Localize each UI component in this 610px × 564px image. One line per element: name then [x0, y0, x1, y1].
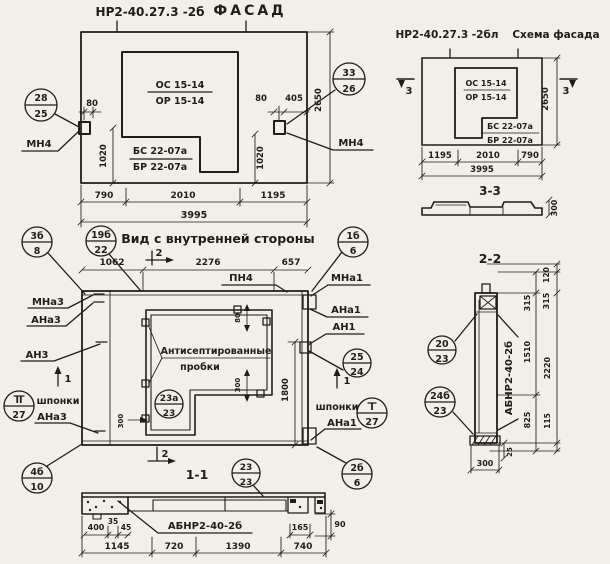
dim-405: 405	[285, 94, 303, 104]
svg-text:20: 20	[435, 339, 449, 350]
svg-text:I: I	[370, 402, 374, 413]
label-ana1-bottom: АНа1	[327, 418, 357, 429]
facade-drawing: НР2-40.27.3 -2б ФАСАД ОС 15-14 ОР 15-14 …	[22, 3, 373, 227]
anchor-label-mn4-left: МН4	[26, 139, 51, 150]
dim-1020-left-line	[110, 125, 116, 186]
dim-2650: 2650	[541, 87, 551, 111]
window-mark-top: ОС 15-14	[156, 80, 205, 91]
blueprint-page: НР2-40.27.3 -2б ФАСАД ОС 15-14 ОР 15-14 …	[0, 0, 610, 564]
dim-25: 25	[506, 447, 514, 457]
dim-115: 115	[543, 413, 552, 429]
dim-400: 400	[88, 523, 105, 532]
dim-right-lines	[268, 106, 310, 120]
svg-text:24б: 24б	[430, 391, 450, 402]
inner-dim-line	[533, 269, 539, 454]
dim-2010: 2010	[170, 191, 195, 201]
note-line1: Антисептированные	[161, 346, 272, 357]
svg-text:28: 28	[34, 93, 48, 104]
svg-text:1: 1	[65, 374, 72, 385]
svg-text:23: 23	[435, 354, 448, 365]
title-ticks	[117, 21, 246, 31]
label-mna3: МНа3	[32, 297, 64, 308]
anchor-mn4-right	[274, 121, 285, 134]
schema-code: НР2-40.27.3 -2бл	[396, 29, 499, 41]
svg-text:26: 26	[342, 84, 356, 95]
schema-title: Схема фасада	[512, 29, 599, 41]
label-shponki-right: шпонки	[316, 402, 359, 413]
svg-text:3: 3	[563, 86, 570, 97]
dim-3995: 3995	[470, 165, 494, 175]
dim-plug-left: 300	[117, 414, 125, 429]
section-marker-2-top: 2	[146, 248, 174, 265]
svg-text:24: 24	[350, 367, 364, 378]
callout-24b-23: 24б 23	[425, 387, 473, 434]
svg-text:1б: 1б	[346, 231, 360, 242]
connector-bottom-right	[303, 428, 316, 444]
anchor-label-mn4-right: МН4	[338, 138, 363, 149]
svg-text:23: 23	[240, 478, 253, 488]
dim-825: 825	[523, 411, 532, 428]
panel-mark-bottom: БР 22-07а	[487, 136, 533, 145]
label-mna1: МНа1	[331, 273, 363, 284]
section-22-panel	[475, 293, 497, 443]
connector-top-right	[303, 295, 316, 309]
dim-2276: 2276	[195, 258, 220, 268]
dim-790: 790	[95, 191, 114, 201]
dim-740: 740	[294, 542, 313, 552]
dim-45: 45	[121, 523, 131, 532]
connector-cross	[480, 296, 496, 309]
callout-23a-23: 23а 23	[155, 390, 183, 419]
callout-shponki-left: II 27	[4, 391, 34, 421]
ana3-bottom-leader	[35, 423, 105, 433]
svg-text:23: 23	[163, 409, 176, 419]
callout-23-23: 23 23	[232, 459, 263, 496]
top-dim-line	[79, 267, 311, 291]
svg-text:8: 8	[34, 246, 41, 257]
dim-790: 790	[521, 151, 539, 161]
dim-300: 300	[477, 459, 494, 468]
dim-2010: 2010	[476, 151, 500, 161]
callout-4b-10: 4б 10	[22, 444, 82, 493]
dim-90-line	[315, 510, 335, 540]
facade-code: НР2-40.27.3 -2б	[96, 5, 205, 19]
panel-mark-top: БС 22-07а	[487, 122, 533, 131]
label-ana3-bottom: АНа3	[37, 412, 67, 423]
section-33-profile	[422, 202, 542, 215]
dim-2220: 2220	[543, 356, 552, 379]
dim-80-right: 80	[255, 94, 267, 104]
dim-1195: 1195	[428, 151, 452, 161]
svg-text:27: 27	[12, 410, 25, 421]
svg-text:10: 10	[30, 482, 44, 493]
svg-text:25: 25	[34, 109, 47, 120]
svg-text:3: 3	[406, 86, 413, 97]
section-11-title: 1-1	[186, 467, 209, 482]
dim-1390: 1390	[225, 542, 250, 552]
callout-20-23: 20 23	[428, 314, 477, 365]
window-mark-bottom: ОР 15-14	[156, 96, 205, 107]
label-ana1: АНа1	[331, 305, 361, 316]
dim-1062: 1062	[99, 258, 124, 268]
svg-text:25: 25	[350, 352, 363, 363]
dim-165: 165	[292, 523, 309, 532]
dim-plug-top: 80	[234, 313, 242, 323]
svg-text:3б: 3б	[30, 231, 44, 242]
svg-text:II: II	[15, 395, 22, 406]
svg-text:2: 2	[162, 449, 169, 460]
section-marker-1-right: 1	[334, 368, 351, 388]
dim-315b: 315	[542, 292, 551, 309]
note-line2: пробки	[180, 362, 220, 373]
label-an1: АН1	[332, 322, 355, 333]
section-11-drawing: 1-1 23 23 АБНР2-40-2б 400 35 45 165 90 1…	[79, 459, 346, 557]
dim-720: 720	[165, 542, 184, 552]
section-marker-2-bottom: 2	[148, 447, 176, 464]
svg-text:19б: 19б	[91, 230, 111, 241]
section-marker-3-right: 3	[560, 79, 577, 97]
dim-1020-left: 1020	[99, 144, 109, 168]
callout-shponki-right: I 27	[357, 398, 387, 428]
dim-657: 657	[282, 258, 301, 268]
svg-text:2б: 2б	[350, 463, 364, 474]
svg-text:2: 2	[156, 248, 163, 259]
panel-mark-bottom: БР 22-07а	[133, 162, 187, 173]
section-marker-1-left: 1	[55, 366, 72, 386]
dim-315a: 315	[523, 294, 532, 311]
mna1-leader	[311, 285, 370, 296]
outer-dim-line	[554, 261, 560, 454]
callout-25-24: 25 24	[309, 349, 371, 378]
top-tenon	[482, 284, 490, 293]
section-22-drawing: 2-2 АБНР2-40-2б 20 23 24б 23 315 1510 82…	[425, 251, 560, 473]
an1-leader	[308, 334, 364, 345]
panel-mark-top: БС 22-07а	[133, 146, 187, 157]
label-abnr-rotated: АБНР2-40-2б	[503, 341, 515, 415]
label-abnr: АБНР2-40-2б	[168, 520, 242, 532]
svg-text:23: 23	[433, 406, 446, 417]
window-mark-top: ОС 15-14	[465, 79, 506, 88]
section-marker-3-left: 3	[397, 79, 414, 97]
panel-inner-lines	[475, 300, 497, 433]
dim-120: 120	[542, 267, 551, 283]
blueprint-canvas: НР2-40.27.3 -2б ФАСАД ОС 15-14 ОР 15-14 …	[0, 0, 610, 564]
dim-1510: 1510	[523, 340, 532, 363]
svg-text:33: 33	[342, 68, 355, 79]
dim-plug-bottom: 300	[234, 378, 242, 393]
ana1-bottom-leader	[311, 429, 361, 440]
svg-text:4б: 4б	[30, 467, 44, 478]
callout-2b-6: 2б 6	[317, 447, 372, 489]
inner-view-drawing: 3б 8 19б 22 Вид с внутренней стороны 106…	[4, 226, 387, 493]
inner-band	[128, 497, 288, 511]
svg-text:23а: 23а	[160, 394, 179, 404]
dim-1020-right: 1020	[256, 146, 266, 170]
label-shponki-left: шпонки	[37, 396, 80, 407]
dim-3995: 3995	[181, 210, 207, 221]
dim-80-left: 80	[86, 99, 98, 109]
dim-2650: 2650	[314, 88, 324, 112]
label-pn4: ПН4	[229, 273, 253, 284]
svg-text:6: 6	[354, 478, 361, 489]
svg-text:23: 23	[240, 463, 253, 473]
svg-text:1: 1	[344, 376, 351, 387]
dim-300: 300	[550, 199, 559, 216]
dim-90: 90	[334, 520, 346, 529]
label-ana3: АНа3	[31, 315, 61, 326]
svg-text:22: 22	[94, 245, 107, 256]
dim-35: 35	[108, 517, 118, 526]
view-title: Вид с внутренней стороны	[121, 231, 314, 246]
title-ticks	[450, 49, 518, 58]
facade-panel-outline	[81, 32, 307, 183]
dim-1195: 1195	[260, 191, 285, 201]
svg-text:6: 6	[350, 246, 357, 257]
window-mark-bottom: ОР 15-14	[465, 93, 506, 102]
facade-title: ФАСАД	[213, 3, 286, 19]
label-an3: АН3	[25, 350, 48, 361]
callout-28-25: 28 25	[25, 89, 79, 127]
callout-3b-8: 3б 8	[22, 227, 85, 294]
section-33-title: 3-3	[479, 184, 501, 198]
dim-1800: 1800	[281, 378, 291, 402]
schema-drawing: НР2-40.27.3 -2бл Схема фасада ОС 15-14 О…	[396, 29, 600, 218]
dim-1145: 1145	[104, 542, 129, 552]
svg-text:27: 27	[365, 417, 378, 428]
